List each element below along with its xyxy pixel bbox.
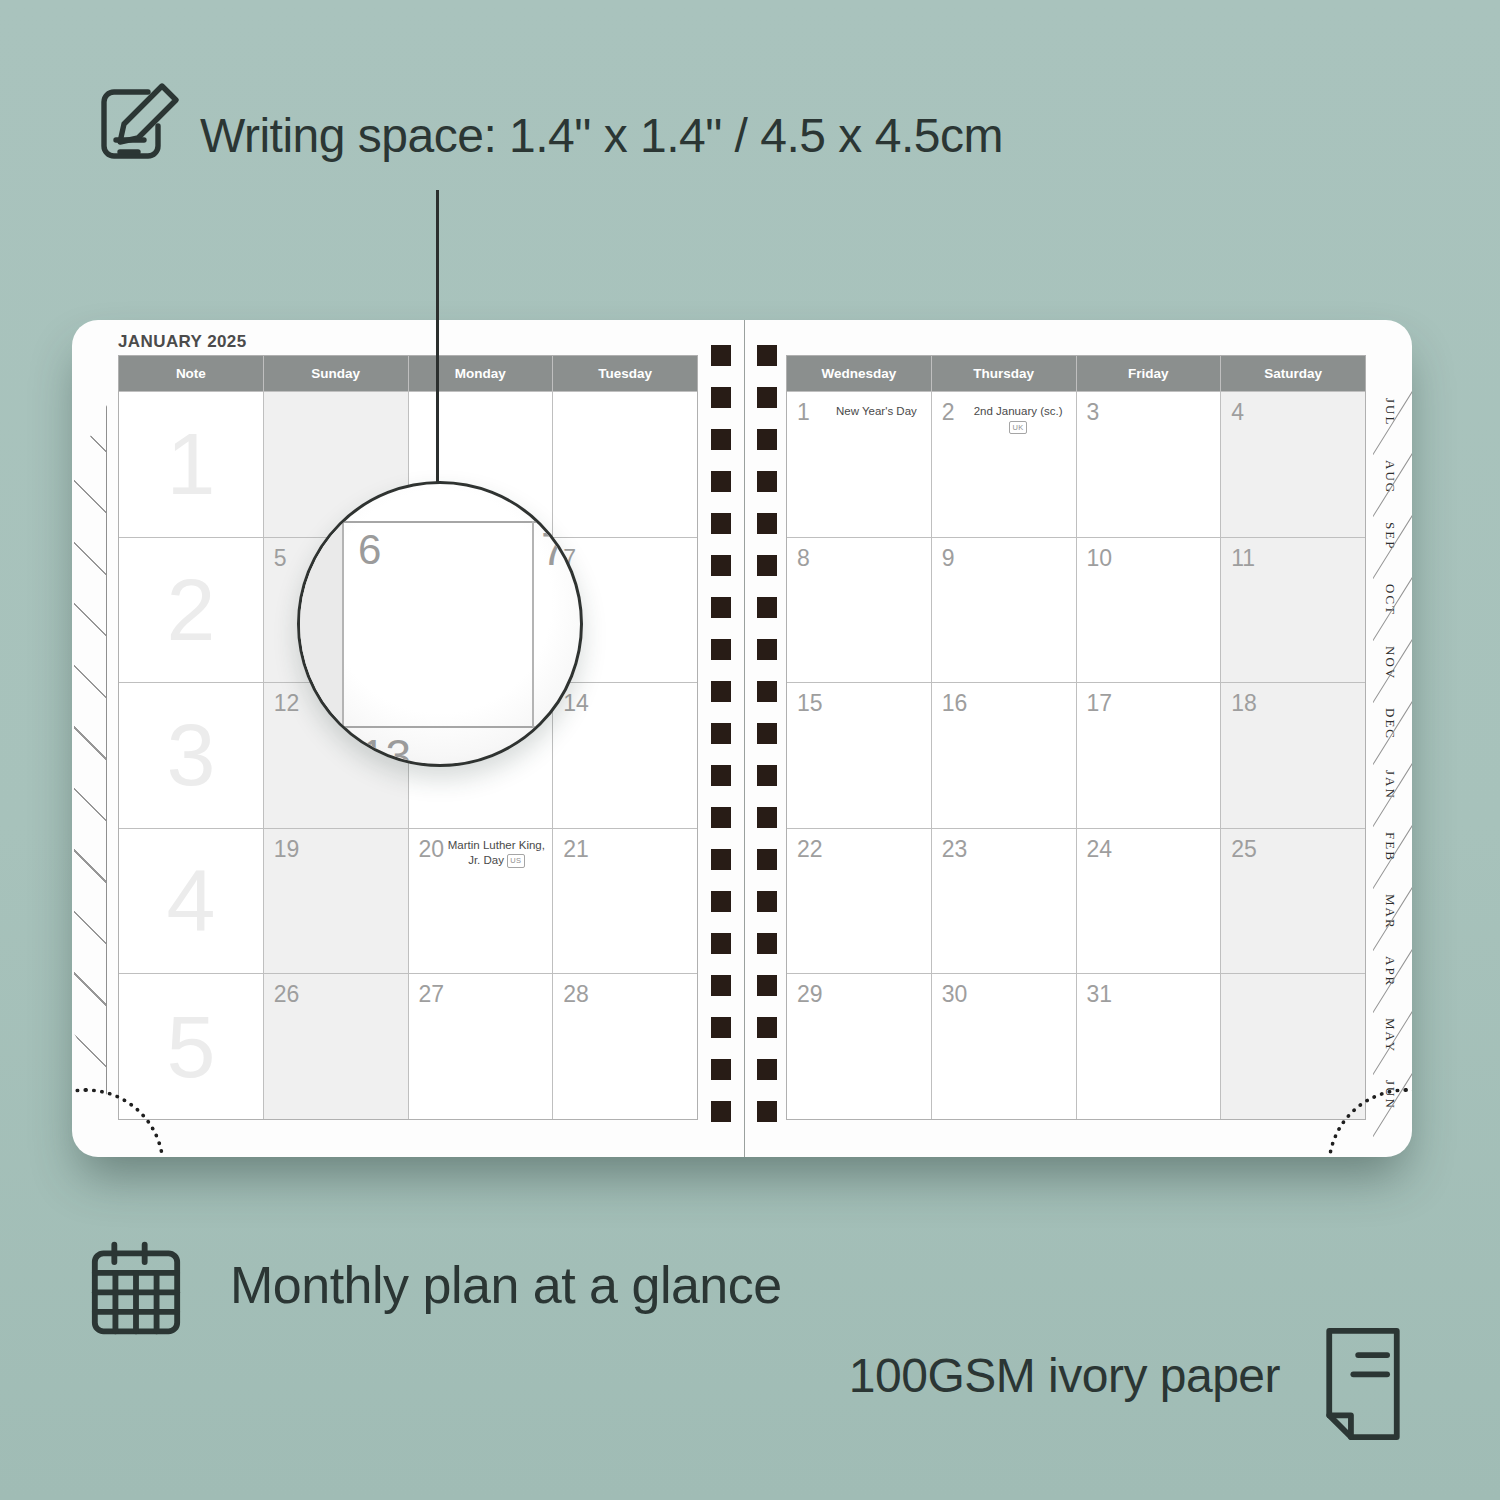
day-number: 22 (797, 836, 823, 863)
paper-caption: 100GSM ivory paper (849, 1348, 1280, 1403)
day-number: 19 (274, 836, 300, 863)
day-number: 10 (1087, 545, 1113, 572)
writing-space-caption: Writing space: 1.4" x 1.4" / 4.5 x 4.5cm (200, 108, 1003, 163)
magnified-grid-line (300, 726, 580, 728)
writing-space-magnifier: 6 7 13 (297, 481, 583, 767)
day-number: 1 (797, 399, 810, 426)
page-gutter-line (744, 320, 745, 1157)
month-tab-strip: JUL AUG SEP OCT NOV DEC JAN FEB MAR APR … (1373, 320, 1412, 1157)
column-header-friday: Friday (1077, 356, 1221, 391)
day-number: 16 (942, 690, 968, 717)
holiday-label: Martin Luther King, Jr. Day US (445, 838, 549, 869)
calendar-cell: 22 (787, 829, 931, 974)
week-number: 2 (119, 538, 263, 683)
column-header-tuesday: Tuesday (553, 356, 697, 391)
column-header-note: Note (119, 356, 263, 391)
calendar-cell: 29 (787, 974, 931, 1119)
calendar-icon (84, 1236, 188, 1340)
day-number: 17 (1087, 690, 1113, 717)
paper-icon (1322, 1326, 1404, 1442)
day-number: 14 (563, 690, 589, 717)
binding-holes-left (711, 345, 731, 1141)
magnifier-pointer-line (436, 190, 439, 484)
day-number: 29 (797, 981, 823, 1008)
calendar-cell: 19 (264, 829, 408, 974)
calendar-cell: 25 (1221, 829, 1365, 974)
calendar-cell: 16 (932, 683, 1076, 828)
product-image: { "colors":{"background":"#a7c2bb","ink"… (0, 0, 1500, 1500)
day-number: 12 (274, 690, 300, 717)
column-header-saturday: Saturday (1221, 356, 1365, 391)
magnified-day-number: 6 (358, 526, 381, 574)
calendar-cell: 31 (1077, 974, 1221, 1119)
calendar-cell: 30 (932, 974, 1076, 1119)
day-number: 15 (797, 690, 823, 717)
monthly-plan-caption: Monthly plan at a glance (230, 1255, 782, 1315)
day-number: 24 (1087, 836, 1113, 863)
day-number: 4 (1231, 399, 1244, 426)
holiday-country-badge: UK (1009, 421, 1026, 434)
calendar-cell: 11 (1221, 538, 1365, 683)
day-number: 9 (942, 545, 955, 572)
calendar-cell (1221, 974, 1365, 1119)
calendar-cell: 24 (1077, 829, 1221, 974)
day-number: 28 (563, 981, 589, 1008)
page-title: JANUARY 2025 (118, 332, 247, 352)
day-number: 8 (797, 545, 810, 572)
month-tab-jul: JUL (1382, 398, 1398, 426)
day-number: 2 (942, 399, 955, 426)
calendar-cell: 17 (1077, 683, 1221, 828)
calendar-cell: 9 (932, 538, 1076, 683)
column-header-sunday: Sunday (264, 356, 408, 391)
month-tab-feb: FEB (1382, 832, 1398, 862)
column-header-thursday: Thursday (932, 356, 1076, 391)
calendar-cell: 28 (553, 974, 697, 1119)
day-number: 31 (1087, 981, 1113, 1008)
calendar-cell-2nd-january: 2 2nd January (sc.) UK (932, 392, 1076, 537)
magnified-grid-line (532, 521, 534, 727)
writing-space-icon (90, 76, 186, 172)
day-number: 25 (1231, 836, 1257, 863)
calendar-cell: 15 (787, 683, 931, 828)
planner-spread: JANUARY 2025 Note Sunday Monday Tuesday … (72, 320, 1412, 1157)
day-number: 21 (563, 836, 589, 863)
left-page-tab-edges (74, 405, 107, 1095)
day-number: 18 (1231, 690, 1257, 717)
calendar-cell: 14 (553, 683, 697, 828)
week-number: 1 (119, 392, 263, 537)
calendar-cell: 18 (1221, 683, 1365, 828)
calendar-cell: 27 (409, 974, 553, 1119)
right-month-grid: Wednesday Thursday Friday Saturday 1 New… (786, 355, 1366, 1120)
calendar-cell-new-years-day: 1 New Year's Day (787, 392, 931, 537)
calendar-cell (553, 392, 697, 537)
holiday-text: 2nd January (sc.) (974, 405, 1063, 417)
binding-holes-right (757, 345, 777, 1141)
calendar-cell: 3 (1077, 392, 1221, 537)
day-number: 27 (419, 981, 445, 1008)
holiday-country-badge: US (507, 854, 524, 867)
day-number: 20 (419, 836, 445, 863)
day-number: 11 (1231, 545, 1255, 572)
holiday-label: New Year's Day (827, 404, 926, 420)
calendar-cell-mlk-day: 20 Martin Luther King, Jr. Day US (409, 829, 553, 974)
column-header-wednesday: Wednesday (787, 356, 931, 391)
month-tab-jan: JAN (1382, 770, 1398, 800)
calendar-cell: 8 (787, 538, 931, 683)
calendar-cell: 10 (1077, 538, 1221, 683)
holiday-text: Martin Luther King, Jr. Day (448, 839, 545, 867)
calendar-cell: 21 (553, 829, 697, 974)
week-number: 3 (119, 683, 263, 828)
week-number: 4 (119, 829, 263, 974)
day-number: 5 (274, 545, 287, 572)
calendar-cell: 4 (1221, 392, 1365, 537)
magnified-grid-line (342, 521, 344, 727)
holiday-label: 2nd January (sc.) UK (964, 404, 1073, 435)
calendar-cell: 23 (932, 829, 1076, 974)
column-header-monday: Monday (409, 356, 553, 391)
day-number: 30 (942, 981, 968, 1008)
day-number: 26 (274, 981, 300, 1008)
calendar-cell: 26 (264, 974, 408, 1119)
day-number: 3 (1087, 399, 1100, 426)
week-number: 5 (119, 974, 263, 1119)
month-tab-sep: SEP (1382, 522, 1398, 550)
day-number: 23 (942, 836, 968, 863)
